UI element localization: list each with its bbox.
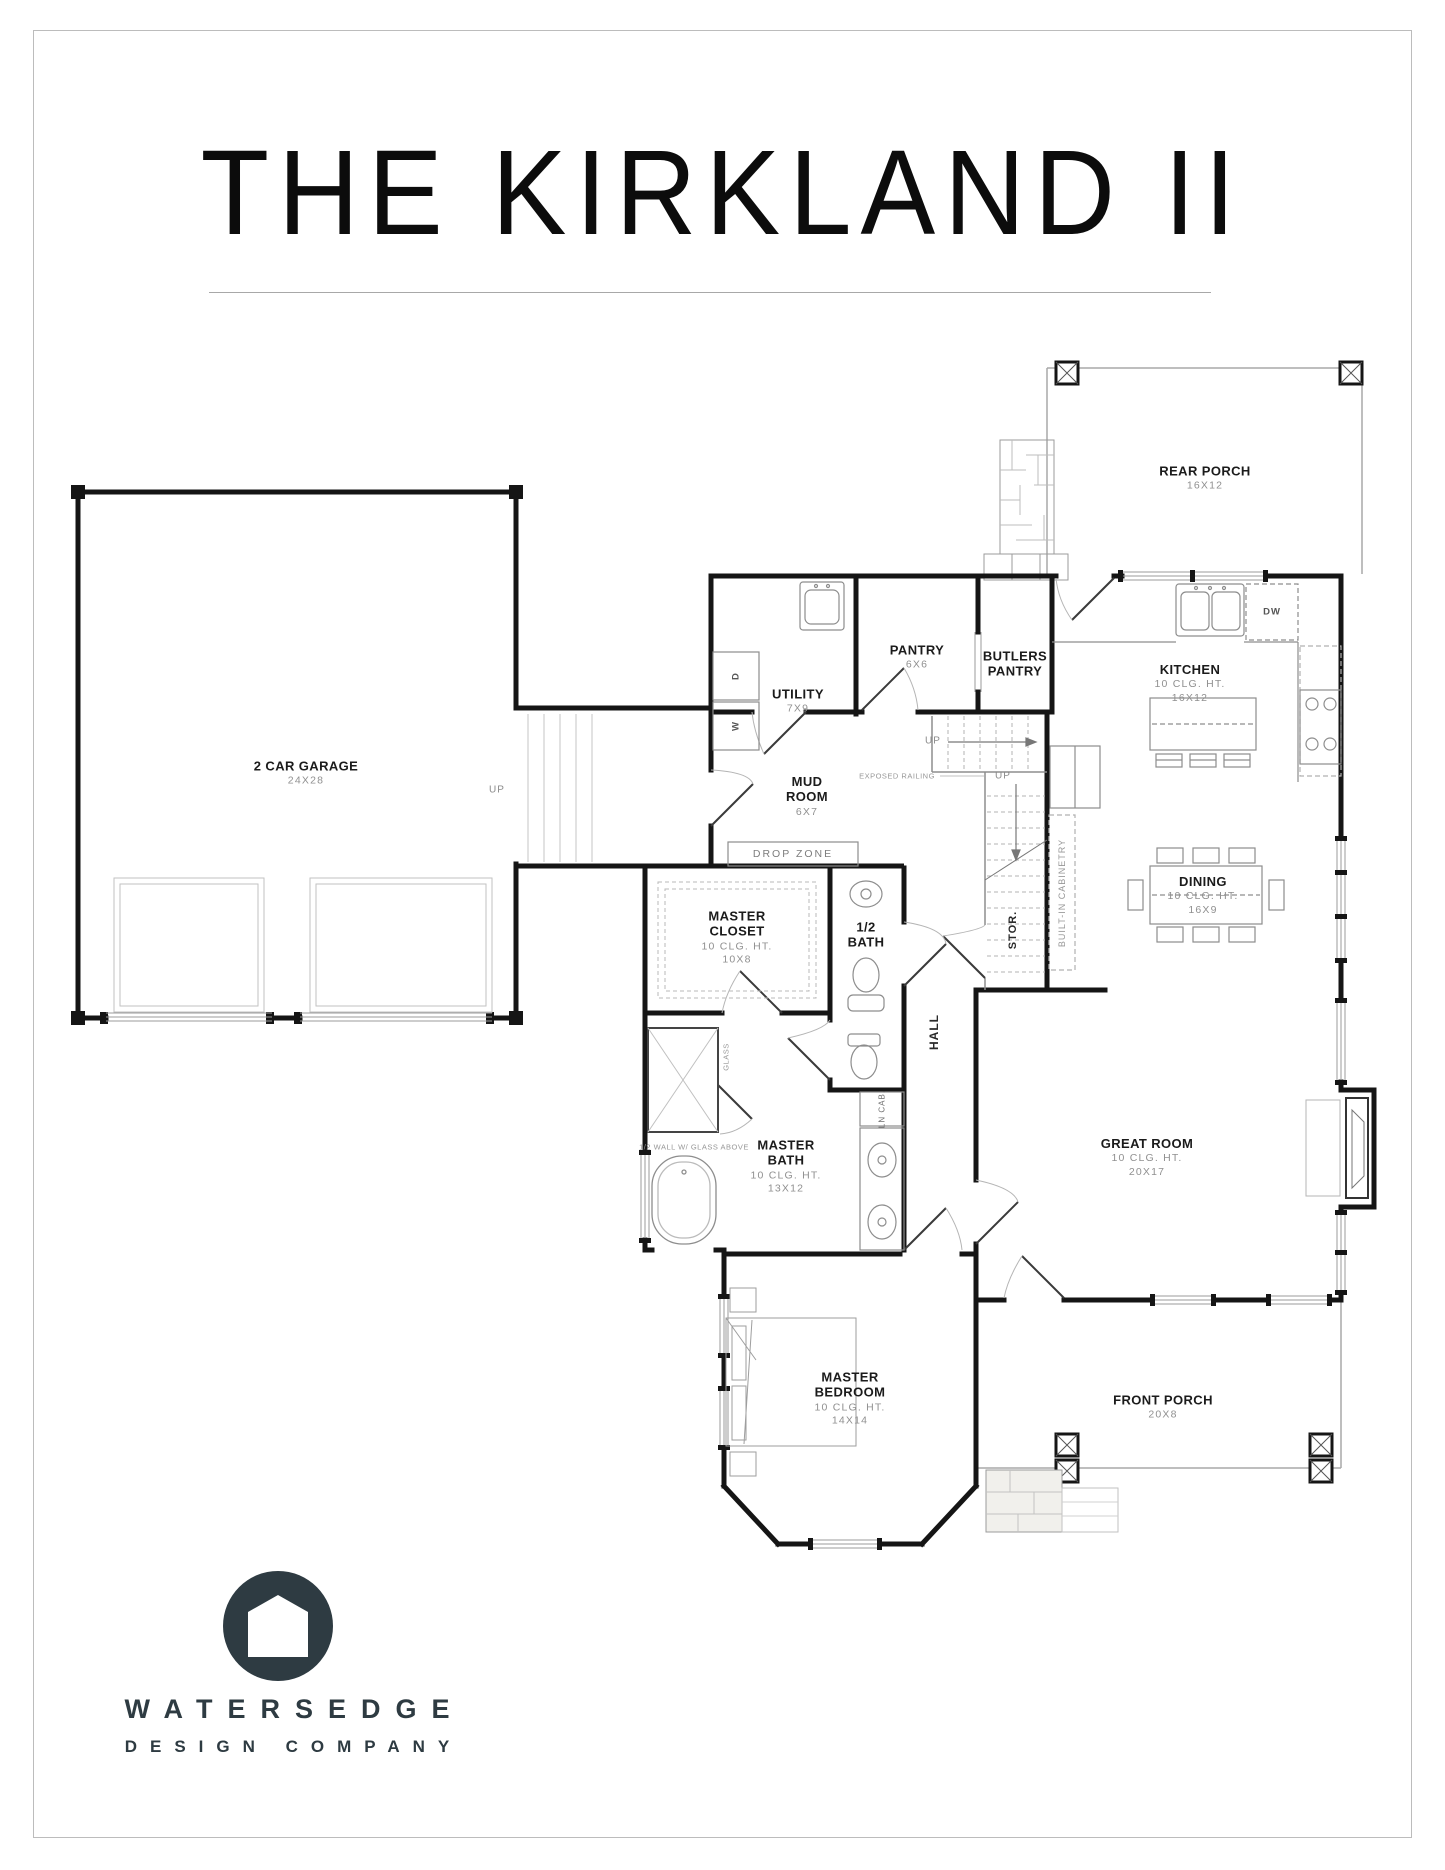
room-label-master-bath: MASTER BATH 10 CLG. HT. 13X12 (745, 1137, 827, 1194)
room-label-great-room: GREAT ROOM 10 CLG. HT. 20X17 (1101, 1136, 1194, 1178)
room-label-master-bedroom: MASTER BEDROOM 10 CLG. HT. 14X14 (795, 1369, 905, 1426)
note-glass: GLASS (722, 1043, 731, 1071)
room-label-kitchen: KITCHEN 10 CLG. HT. 16X12 (1155, 662, 1226, 704)
note-built-in-cabinetry: BUILT-IN CABINETRY (1057, 839, 1067, 947)
fridge (1050, 746, 1100, 808)
front-porch-outline (976, 1302, 1341, 1468)
shower (648, 1028, 718, 1132)
room-label-garage: 2 CAR GARAGE 24X28 (254, 759, 358, 788)
note-up-stair-lower: UP (995, 771, 1011, 782)
porch-posts (1056, 362, 1362, 1482)
garage-corner-posts (71, 485, 523, 1025)
tub (652, 1156, 716, 1244)
room-label-rear-porch: REAR PORCH 16X12 (1159, 464, 1250, 493)
washer-dryer (713, 652, 759, 750)
room-label-butlers-pantry: BUTLERS PANTRY (969, 649, 1061, 680)
upper-cabinets (1300, 646, 1341, 776)
house-walls (645, 576, 1341, 1544)
logo-mark (223, 1571, 333, 1681)
front-steps-stone (986, 1470, 1118, 1532)
kitchen-sink (1176, 584, 1244, 636)
kitchen-island (1150, 698, 1256, 767)
fireplace (1306, 1090, 1374, 1207)
garage-doors (106, 878, 492, 1021)
stairs (932, 716, 1047, 972)
note-storage: STOR. (1007, 911, 1019, 949)
note-dishwasher: DW (1263, 607, 1281, 618)
logo-tagline: DESIGN COMPANY (77, 1737, 497, 1757)
garage-walls (78, 492, 516, 1018)
utility-sink (800, 582, 844, 630)
note-drop-zone: DROP ZONE (753, 848, 833, 860)
note-up-stair-upper: UP (925, 736, 941, 747)
note-linen-cabinet: LN CAB. (878, 1090, 887, 1128)
room-label-half-bath: 1/2 BATH (840, 920, 892, 951)
room-label-front-porch: FRONT PORCH 20X8 (1113, 1393, 1213, 1422)
note-dryer: D (731, 672, 742, 680)
house-icon (248, 1595, 308, 1657)
note-exposed-railing: EXPOSED RAILING (859, 772, 935, 781)
note-washer: W (731, 721, 742, 731)
room-label-mud-room: MUD ROOM 6X7 (775, 774, 839, 818)
chimney (984, 440, 1068, 580)
floor-plan-page: { "page": { "title": "THE KIRKLAND II" }… (0, 0, 1445, 1870)
windows (639, 570, 1347, 1550)
room-label-pantry: PANTRY 6X6 (890, 643, 944, 672)
master-toilet (848, 1034, 880, 1079)
note-up-breezeway: UP (489, 785, 505, 796)
note-half-wall-glass: 1/2 WALL W/ GLASS ABOVE (639, 1143, 749, 1152)
room-label-utility: UTILITY 7X9 (772, 687, 824, 716)
note-hall: HALL (927, 1014, 941, 1050)
logo-name: WATERSEDGE (77, 1694, 497, 1725)
range (1300, 690, 1341, 764)
room-label-dining: DINING 10 CLG. HT. 16X9 (1168, 874, 1239, 916)
room-label-master-closet: MASTER CLOSET 10 CLG. HT. 10X8 (689, 908, 785, 965)
